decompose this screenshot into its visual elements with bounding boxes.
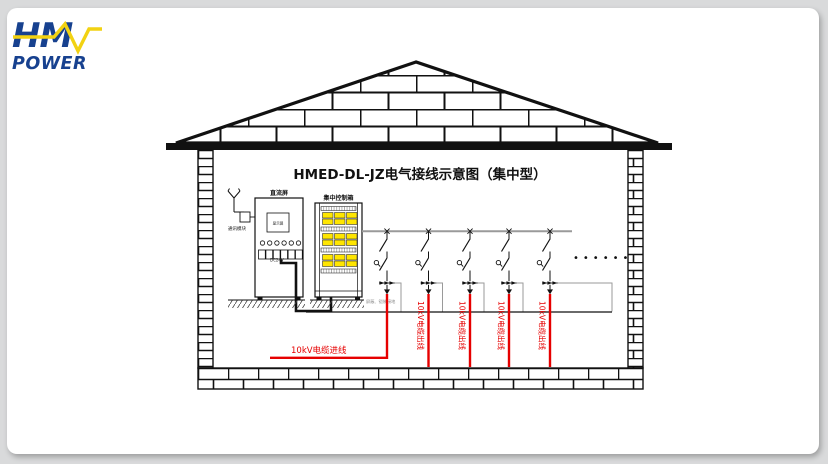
logo-power-text: POWER bbox=[12, 54, 87, 74]
incoming-cable-label: 10kV电缆进线 bbox=[291, 345, 347, 356]
outgoing-cable-label: 10kV电缆出线 bbox=[458, 301, 468, 351]
dc-panel-screen-label: 显示屏 bbox=[273, 222, 284, 226]
wiring-diagram: HMED-DL-JZ电气接线示意图（集中型） 通讯模块 显示屏 bbox=[0, 0, 828, 464]
control-cabinet-label: 集中控制箱 bbox=[322, 194, 353, 202]
switch-bay bbox=[457, 229, 478, 295]
comm-module-label: 通讯模块 bbox=[228, 225, 246, 232]
dc-panel-label: 直流屏 bbox=[270, 189, 288, 197]
diagram-title: HMED-DL-JZ电气接线示意图（集中型） bbox=[293, 166, 546, 183]
ground-note-label: 屏蔽、铠装接地 bbox=[366, 298, 396, 305]
control-cabinet bbox=[315, 203, 362, 301]
outgoing-cable-label: 10kV电缆出线 bbox=[416, 301, 426, 351]
floor-wall bbox=[198, 368, 643, 389]
switch-bay bbox=[537, 229, 558, 295]
floor-hatching bbox=[228, 300, 364, 308]
left-wall bbox=[198, 150, 213, 368]
outgoing-cable-label: 10kV电缆出线 bbox=[538, 301, 548, 351]
house-roof bbox=[166, 62, 672, 150]
switch-bay bbox=[374, 229, 395, 295]
switch-bay bbox=[416, 229, 437, 295]
antenna-icon bbox=[228, 189, 244, 214]
page-background: HMED-DL-JZ电气接线示意图（集中型） 通讯模块 显示屏 bbox=[0, 0, 828, 464]
hm-power-logo: HM POWER bbox=[10, 12, 110, 74]
comm-module-box bbox=[240, 212, 250, 222]
continuation-dots: •••••• bbox=[573, 253, 632, 264]
outgoing-cable-label: 10kV电缆出线 bbox=[497, 301, 507, 351]
switch-bay bbox=[496, 229, 517, 295]
